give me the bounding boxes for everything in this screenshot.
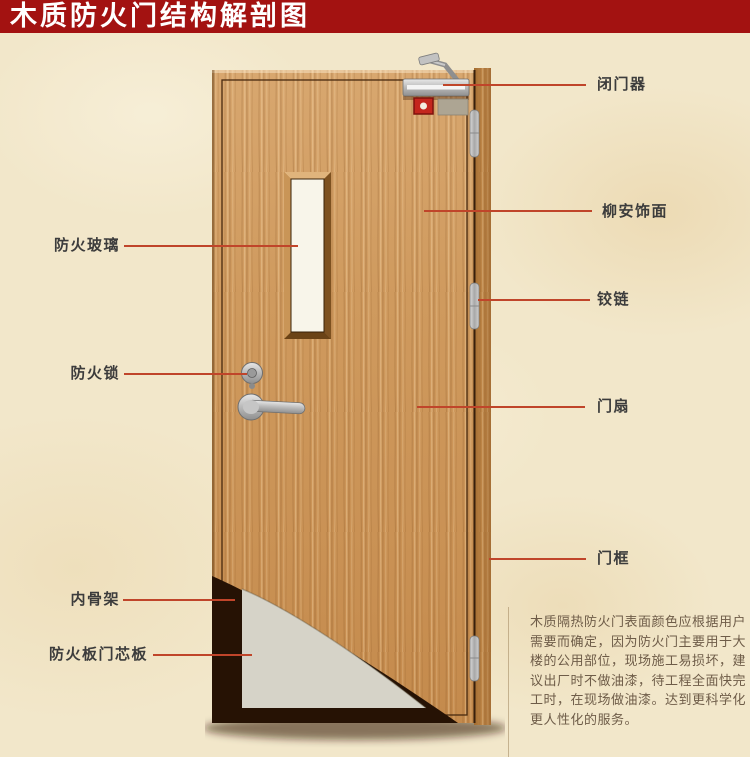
callout-line-inner-skeleton xyxy=(123,599,235,601)
description-text: 木质隔热防火门表面颜色应根据用户 需要而确定，因为防火门主要用于大 楼的公用部位… xyxy=(530,612,750,729)
callout-line-core-board xyxy=(153,654,252,656)
exit-indicator xyxy=(414,98,433,114)
label-fire-lock: 防火锁 xyxy=(66,366,120,382)
fire-glass-window xyxy=(284,172,331,339)
title-banner: 木质防火门结构解剖图 xyxy=(0,0,750,33)
label-core-board: 防火板门芯板 xyxy=(40,647,148,663)
callout-line-hinge xyxy=(478,299,590,301)
label-fire-glass: 防火玻璃 xyxy=(50,238,120,254)
label-door-leaf: 门扇 xyxy=(597,399,630,415)
hinge-middle xyxy=(470,283,479,329)
hinge-top xyxy=(470,110,479,157)
label-hinge: 铰链 xyxy=(597,292,630,308)
label-door-frame: 门框 xyxy=(597,551,630,567)
label-inner-skeleton: 内骨架 xyxy=(66,592,120,608)
hinge-bottom xyxy=(470,636,479,681)
callout-line-fire-lock xyxy=(124,373,247,375)
callout-line-fire-glass xyxy=(124,245,298,247)
description-divider xyxy=(508,607,509,757)
page-title: 木质防火门结构解剖图 xyxy=(0,0,310,33)
door-assembly xyxy=(212,53,491,725)
callout-line-door-closer xyxy=(443,84,586,86)
callout-line-veneer xyxy=(424,210,592,212)
fire-door-diagram-page: { "title": "木质防火门结构解剖图", "colors": { "ba… xyxy=(0,0,750,757)
label-door-closer: 闭门器 xyxy=(597,77,647,93)
door-illustration xyxy=(205,52,505,752)
callout-line-door-frame xyxy=(489,558,586,560)
strike-plate xyxy=(438,99,468,115)
label-veneer: 柳安饰面 xyxy=(602,204,668,220)
callout-line-door-leaf xyxy=(417,406,585,408)
